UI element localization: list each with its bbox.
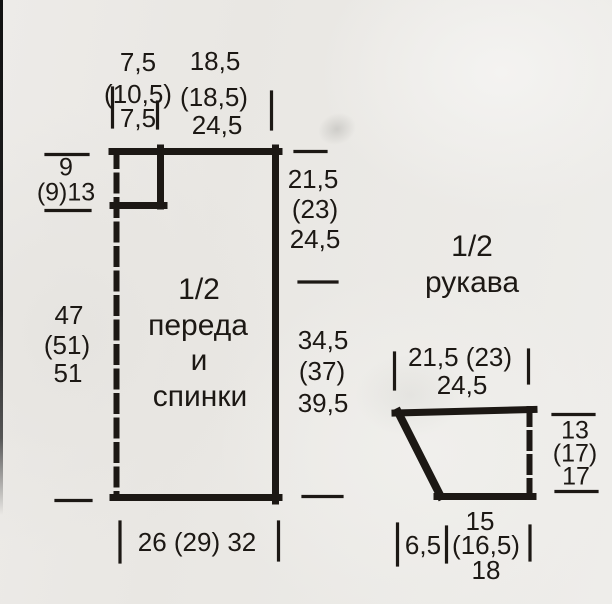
neck-depth-value-1: 9 bbox=[59, 156, 73, 181]
total-length-value-2: (51) bbox=[44, 332, 90, 358]
armhole-depth-value-3: 24,5 bbox=[290, 226, 341, 252]
sleeve-slant-width-value: 6,5 bbox=[405, 532, 441, 558]
neck-width-value-1: 7,5 bbox=[120, 49, 156, 75]
sleeve-top-width-value-2: 24,5 bbox=[437, 372, 488, 398]
total-length-value-1: 47 bbox=[55, 302, 84, 328]
total-length-value-3: 51 bbox=[54, 360, 83, 386]
shoulder-width-value-2: (18,5) bbox=[180, 84, 248, 110]
shoulder-width-value-3: 24,5 bbox=[192, 112, 243, 138]
side-length-value-1: 34,5 bbox=[298, 327, 349, 353]
front-back-title-line-4: спинки bbox=[153, 382, 247, 412]
sleeve-title-line-1: 1/2 bbox=[451, 232, 493, 262]
front-back-title-line-2: переда bbox=[148, 311, 248, 341]
knitting-pattern-scan: 7,5 (10,5) 7,5 18,5 (18,5) 24,5 9 (9)13 … bbox=[0, 0, 612, 604]
armhole-depth-value-1: 21,5 bbox=[288, 166, 339, 192]
neck-width-value-3: 7,5 bbox=[120, 105, 156, 131]
sleeve-piece-outline bbox=[395, 409, 534, 497]
pattern-schematic-drawing bbox=[0, 0, 612, 604]
sleeve-bottom-width-value-3: 18 bbox=[472, 557, 501, 583]
side-length-value-3: 39,5 bbox=[298, 390, 349, 416]
neck-depth-value-2: (9)13 bbox=[37, 181, 95, 206]
sleeve-title-line-2: рукава bbox=[425, 268, 519, 298]
sleeve-top-edge bbox=[395, 410, 534, 414]
sleeve-top-width-value-1: 21,5 (23) bbox=[408, 344, 512, 370]
bottom-width-value: 26 (29) 32 bbox=[138, 529, 257, 555]
armhole-depth-value-2: (23) bbox=[292, 196, 338, 222]
sleeve-slant-edge bbox=[398, 412, 441, 496]
side-length-value-2: (37) bbox=[299, 358, 345, 384]
front-back-title-line-1: 1/2 bbox=[178, 275, 220, 305]
front-back-title-line-3: и bbox=[191, 346, 208, 376]
shoulder-width-value-1: 18,5 bbox=[190, 48, 241, 74]
sleeve-cap-height-value-3: 17 bbox=[562, 465, 590, 490]
